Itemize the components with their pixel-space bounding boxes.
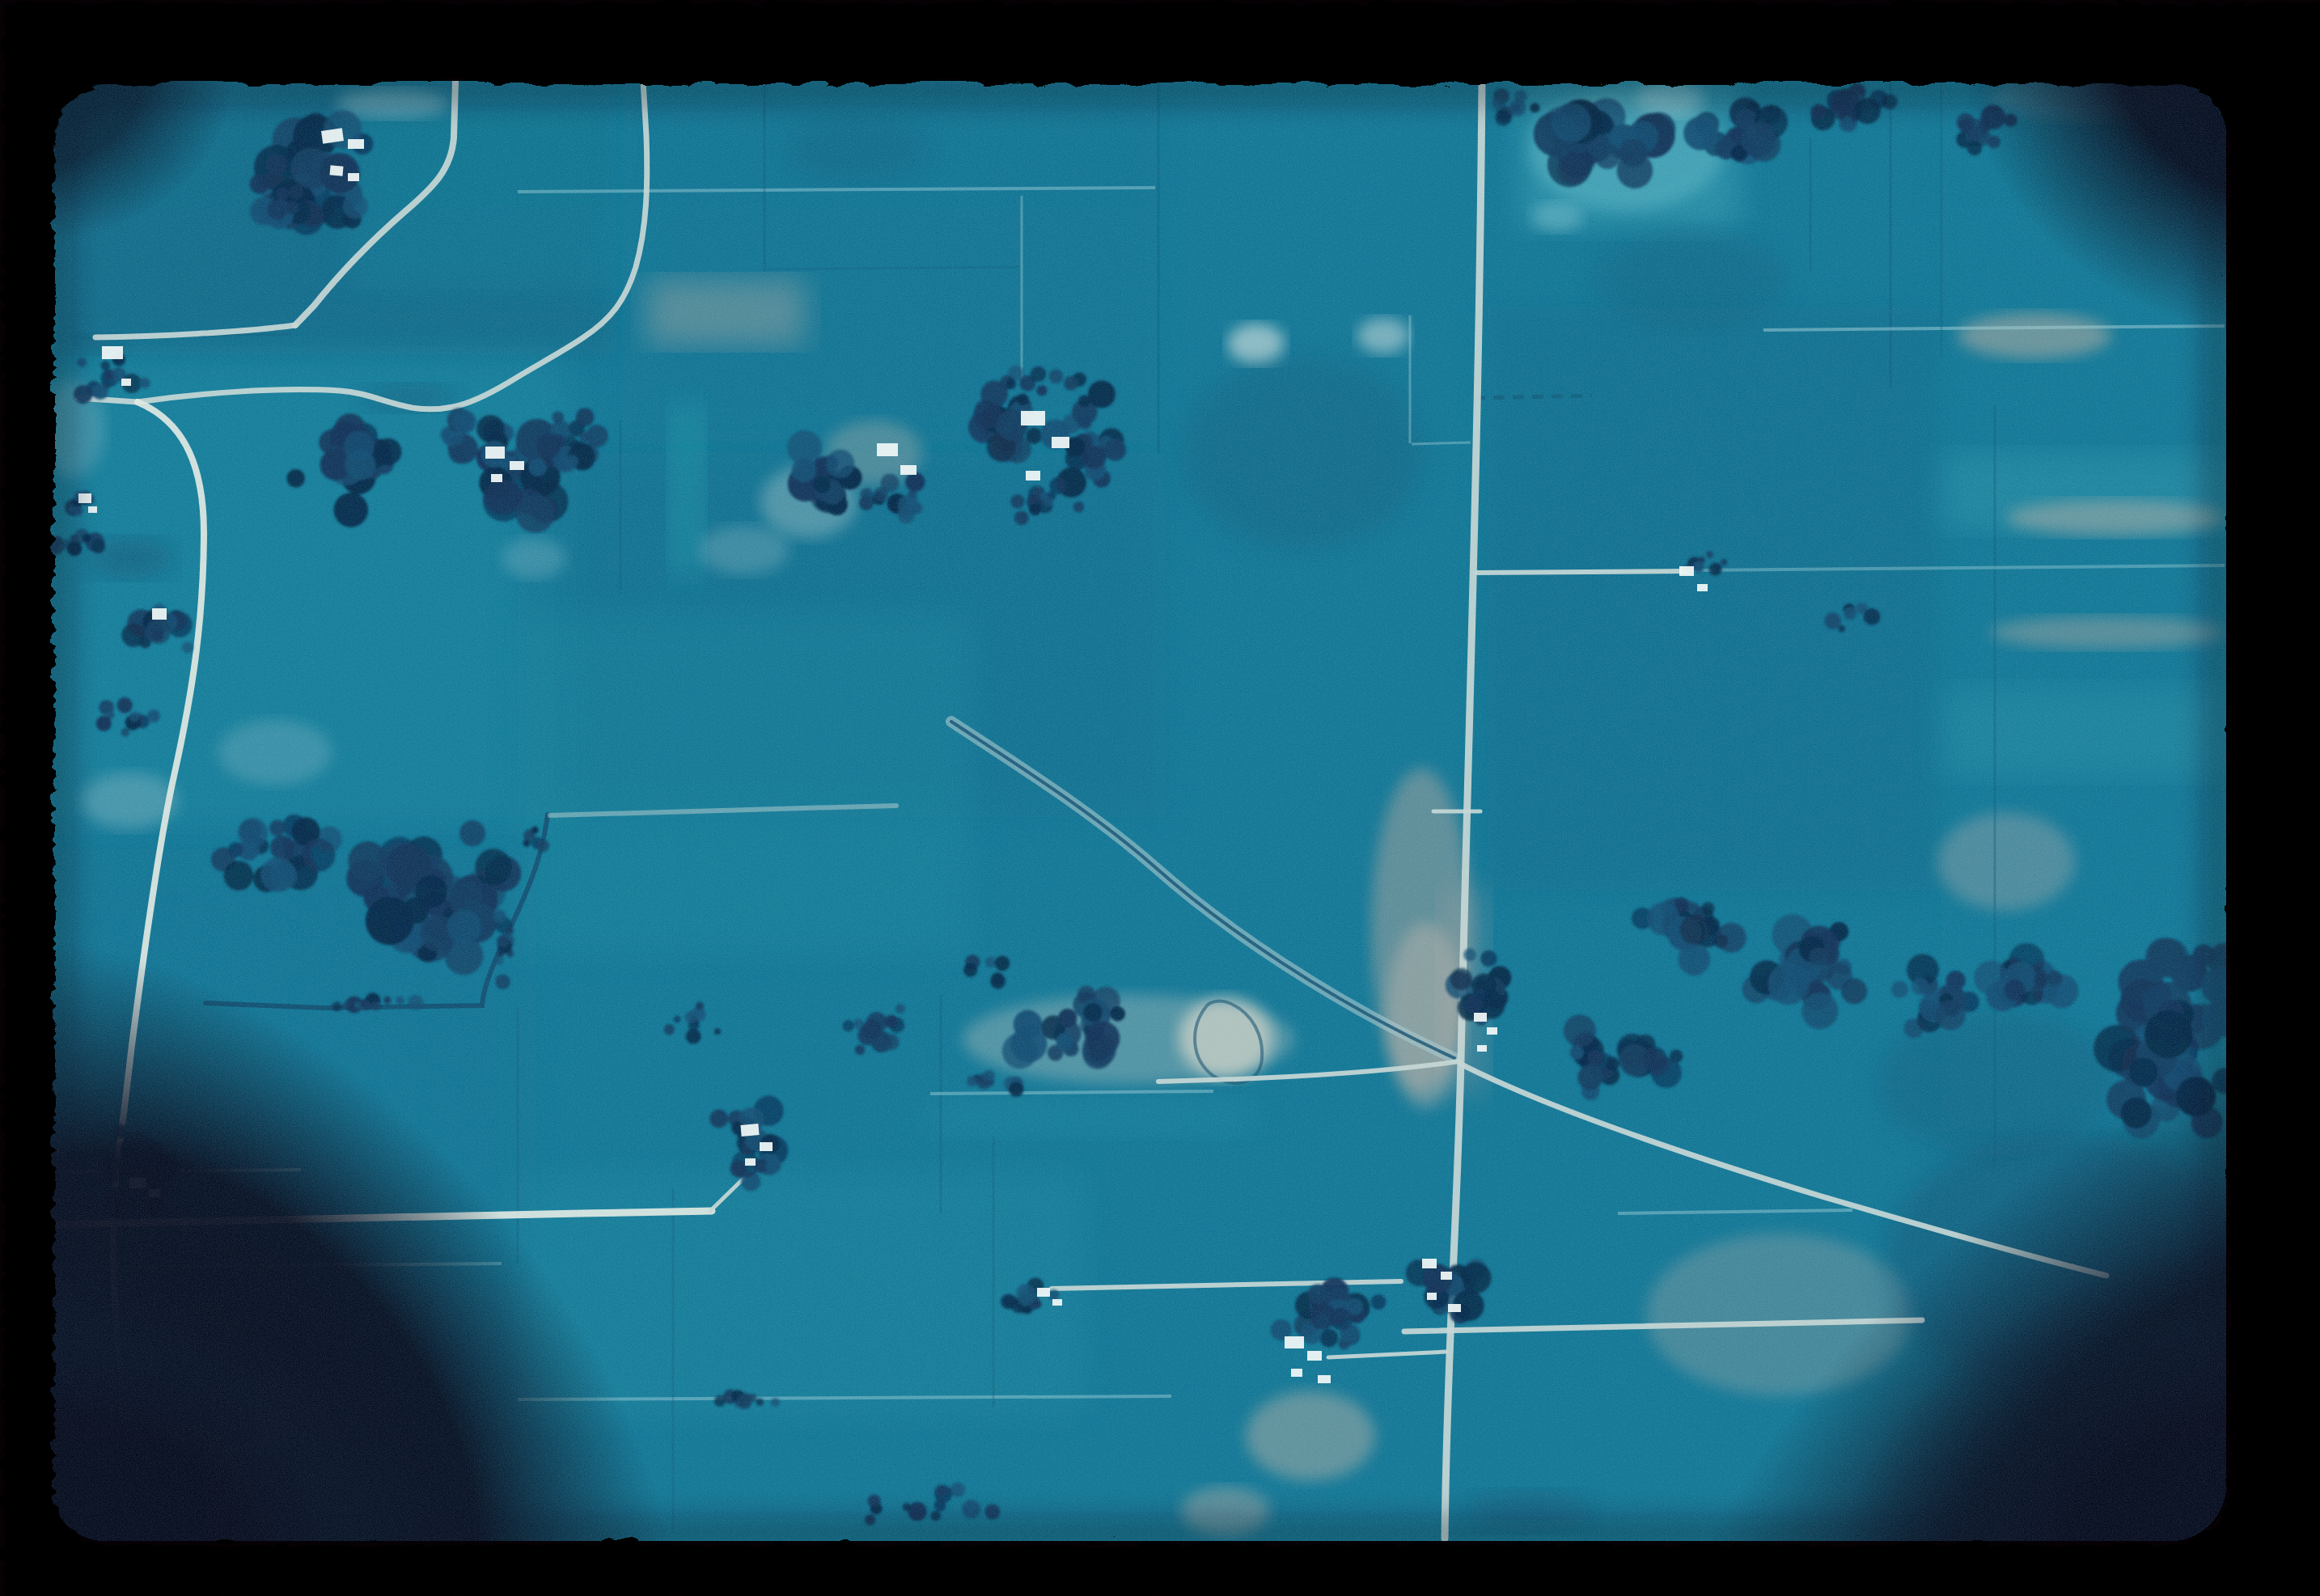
film-grain-overlay	[50, 81, 2226, 1541]
aerial-photo	[0, 0, 2320, 1596]
slide-scan	[0, 0, 2320, 1596]
aerial-photo-slide	[0, 0, 2320, 1596]
